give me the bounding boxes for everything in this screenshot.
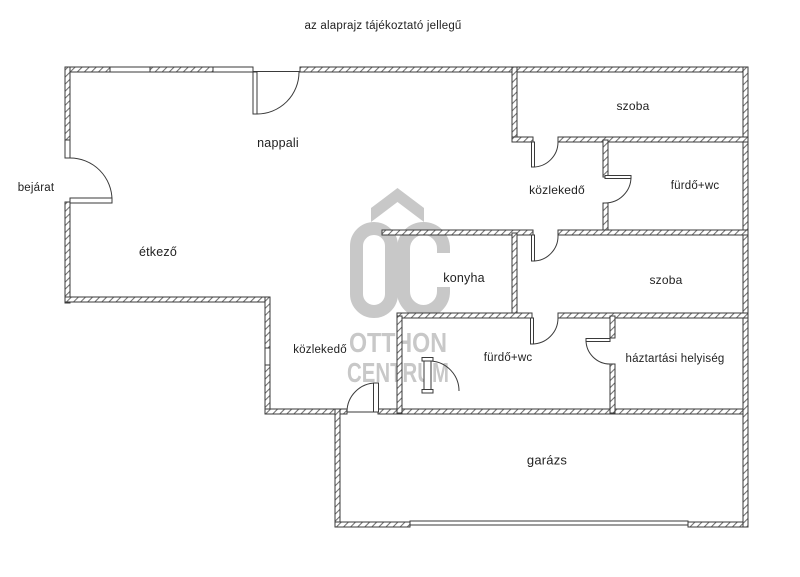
wall-top-a [65,67,110,72]
windows [65,67,688,525]
wall-top-b [150,67,213,72]
door-furdo-bottom [531,318,559,344]
wall-haztartasi-left-a [610,316,615,338]
wall-left-b [65,202,70,303]
wall-szoba-bottom-b [558,137,748,142]
room-label-szoba-top: szoba [616,99,649,113]
plan-disclaimer-title: az alaprajz tájékoztató jellegű [304,20,461,32]
wall-right [743,67,748,527]
wall-konyha-szoba-divider [512,233,517,318]
wall-furdo-bottom-left [397,316,402,413]
room-label-haztartasi: háztartási helyiség [625,353,724,365]
wall-konyha-bottom-b [558,313,748,318]
room-label-bejarat: bejárat [18,182,55,194]
wall-left-a [65,67,70,140]
wall-bottom-b [378,409,748,414]
floor-plan: OTTHON CENTRUM [0,0,800,577]
wall-furdo-top-left-a [603,140,608,177]
window-top-1 [110,67,150,72]
room-label-furdo-wc-bottom: fürdő+wc [484,352,533,364]
room-label-garazs: garázs [527,453,567,468]
window-left [65,140,70,158]
watermark-letter-o [357,229,392,312]
room-label-etkezo: étkező [139,245,177,259]
room-label-nappali: nappali [257,136,299,150]
door-szoba-middle [532,235,559,261]
wall-szoba-left [512,67,517,142]
wall-szoba-bottom-a [512,137,533,142]
wall-middle-a [382,230,533,235]
wall-middle-b [558,230,748,235]
floor-plan-drawing: OTTHON CENTRUM [0,0,800,577]
window-kozlekedo [265,348,270,365]
room-label-konyha: konyha [443,271,485,285]
room-label-kozlekedo-bottom: közlekedő [293,344,347,356]
wall-garage-left [335,409,340,527]
roof-icon [371,188,424,222]
wall-garage-bottom-a [335,522,410,527]
door-bejarat [70,158,112,203]
wall-garage-bottom-b [688,522,748,527]
garage-door-segment [410,521,688,525]
wall-top-c [300,67,748,72]
room-label-szoba-middle: szoba [649,273,682,287]
wall-haztartasi-left-b [610,364,615,413]
door-nappali [253,72,300,115]
wall-konyha-bottom-a [397,313,532,318]
wall-etkezo-bottom [65,297,270,302]
room-label-furdo-wc-top: fürdő+wc [671,180,720,192]
room-label-kozlekedo-top: közlekedő [529,183,585,197]
door-furdo-top [605,176,631,204]
door-haztartasi [586,339,610,365]
window-top-2 [213,67,253,72]
door-szoba-top [532,142,559,167]
